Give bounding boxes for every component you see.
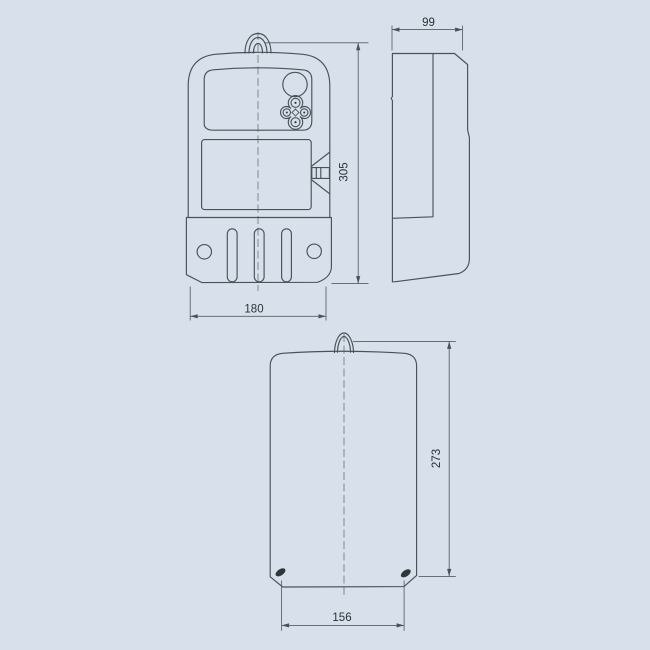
- mounting-hole-left: [274, 567, 287, 579]
- terminal-cover-screw-hole-left: [197, 245, 211, 259]
- mounting-hole-right: [399, 568, 412, 580]
- arrowhead-down: [447, 569, 451, 577]
- cable-slot-center: [254, 229, 264, 282]
- inspection-circle: [283, 72, 307, 96]
- side-cover-split-line: [392, 54, 433, 219]
- dimension-front-width: 180: [190, 287, 326, 321]
- dimension-label-front-width: 180: [244, 303, 263, 315]
- nameplate-window: [202, 140, 312, 210]
- arrowhead-right: [397, 623, 405, 627]
- back-view: [270, 333, 416, 598]
- dimension-label-front-height: 305: [339, 162, 351, 181]
- dimension-drawing: 305 180 99: [0, 0, 650, 650]
- back-body-outline: [270, 351, 416, 587]
- dimension-label-side-width: 99: [422, 17, 435, 29]
- arrowhead-left: [282, 623, 290, 627]
- dimension-back-height: 273: [353, 341, 456, 576]
- side-view: [391, 54, 469, 282]
- arrowhead-left: [190, 314, 198, 318]
- terminal-cover: [186, 218, 331, 283]
- arrowhead-right: [319, 314, 327, 318]
- arrowhead-left: [392, 28, 400, 32]
- dimension-side-width: 99: [392, 17, 463, 51]
- terminal-cover-screw-hole-right: [307, 244, 321, 258]
- dimension-label-back-width: 156: [332, 612, 351, 624]
- dimension-back-width: 156: [282, 581, 405, 631]
- arrowhead-up: [447, 341, 451, 349]
- meter-body-outline: [188, 52, 330, 217]
- cable-slot-right: [282, 229, 292, 282]
- side-body-outline: [391, 54, 469, 282]
- display-window: [204, 68, 312, 130]
- front-view: [186, 32, 331, 291]
- dimension-label-back-height: 273: [431, 449, 443, 468]
- drawing-canvas: 305 180 99: [0, 0, 650, 650]
- dimension-front-height: 305: [266, 43, 369, 284]
- arrowhead-right: [455, 28, 463, 32]
- arrowhead-down: [356, 276, 360, 284]
- arrowhead-up: [356, 43, 360, 51]
- seal-cluster: [281, 96, 311, 130]
- cable-slot-left: [227, 229, 237, 282]
- cover-seal-screw: [312, 153, 330, 194]
